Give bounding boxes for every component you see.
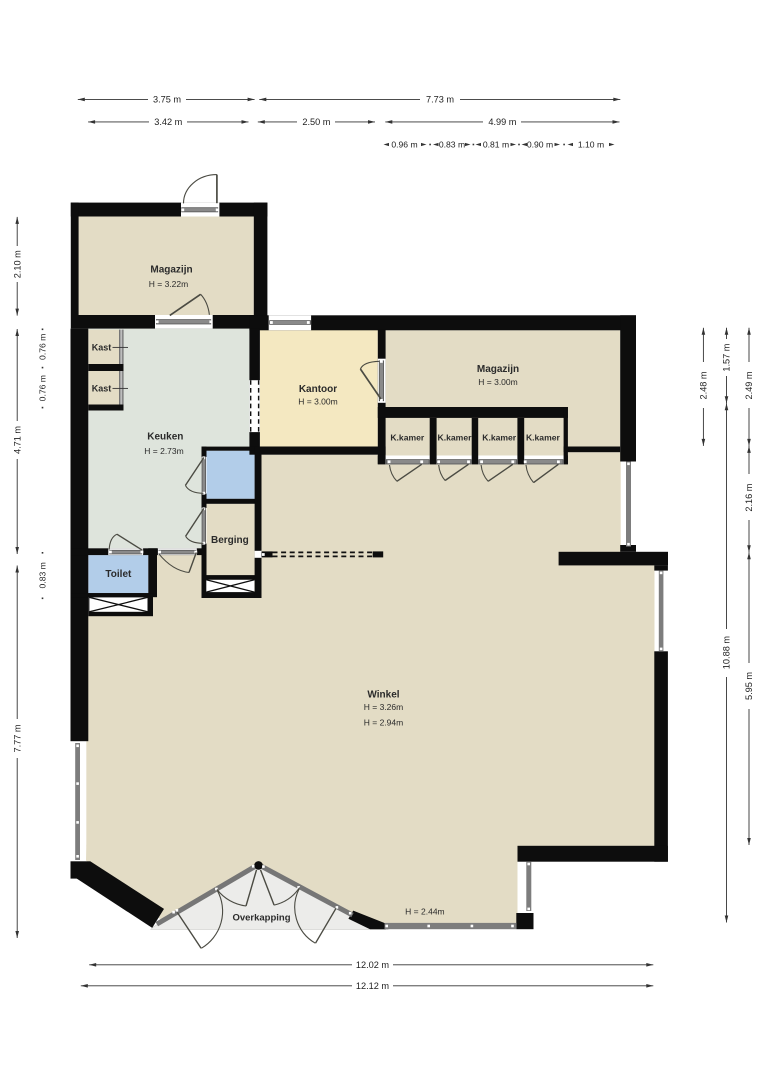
svg-text:Keuken: Keuken <box>147 432 183 443</box>
svg-text:0.96 m: 0.96 m <box>391 140 417 150</box>
svg-text:7.73 m: 7.73 m <box>426 95 454 105</box>
svg-text:H = 3.22m: H = 3.22m <box>149 279 188 289</box>
svg-text:0.83 m: 0.83 m <box>38 562 48 588</box>
svg-text:H = 3.00m: H = 3.00m <box>298 397 337 407</box>
svg-text:2.49 m: 2.49 m <box>744 371 754 399</box>
svg-text:2.50 m: 2.50 m <box>302 117 330 127</box>
svg-text:K.kamer: K.kamer <box>390 432 425 442</box>
svg-text:Magazijn: Magazijn <box>150 265 192 276</box>
svg-text:H = 2.94m: H = 2.94m <box>364 718 403 728</box>
svg-text:H = 2.73m: H = 2.73m <box>144 446 183 456</box>
svg-text:3.42 m: 3.42 m <box>154 117 182 127</box>
svg-text:Winkel: Winkel <box>367 689 399 700</box>
svg-text:K.kamer: K.kamer <box>526 432 561 442</box>
svg-text:0.81 m: 0.81 m <box>483 140 509 150</box>
svg-text:K.kamer: K.kamer <box>438 432 473 442</box>
svg-text:0.83 m: 0.83 m <box>439 140 465 150</box>
svg-text:4.71 m: 4.71 m <box>12 426 22 454</box>
svg-text:K.kamer: K.kamer <box>482 432 517 442</box>
svg-text:1.57 m: 1.57 m <box>722 343 732 371</box>
svg-text:H = 3.26m: H = 3.26m <box>364 702 403 712</box>
svg-text:Toilet: Toilet <box>105 569 132 580</box>
svg-text:Magazijn: Magazijn <box>477 364 519 375</box>
svg-text:H = 3.00m: H = 3.00m <box>478 377 517 387</box>
svg-text:5.95 m: 5.95 m <box>744 672 754 700</box>
svg-text:H = 2.44m: H = 2.44m <box>405 907 444 917</box>
svg-text:0.90 m: 0.90 m <box>527 140 553 150</box>
svg-text:Overkapping: Overkapping <box>232 912 290 923</box>
svg-text:12.12 m: 12.12 m <box>356 981 390 991</box>
svg-text:12.02 m: 12.02 m <box>356 960 390 970</box>
svg-text:7.77 m: 7.77 m <box>12 724 22 752</box>
svg-text:0.76 m: 0.76 m <box>38 375 48 401</box>
svg-text:Berging: Berging <box>211 535 249 546</box>
svg-text:3.75 m: 3.75 m <box>153 95 181 105</box>
svg-text:2.48 m: 2.48 m <box>699 371 709 399</box>
svg-text:0.76 m: 0.76 m <box>38 334 48 360</box>
svg-text:2.10 m: 2.10 m <box>12 250 22 278</box>
svg-text:4.99 m: 4.99 m <box>488 117 516 127</box>
svg-text:2.16 m: 2.16 m <box>744 483 754 511</box>
svg-text:Kast: Kast <box>92 384 112 394</box>
svg-text:1.10 m: 1.10 m <box>578 140 604 150</box>
svg-text:Kantoor: Kantoor <box>299 384 337 395</box>
svg-text:10.88 m: 10.88 m <box>722 636 732 670</box>
svg-text:Kast: Kast <box>92 343 112 353</box>
